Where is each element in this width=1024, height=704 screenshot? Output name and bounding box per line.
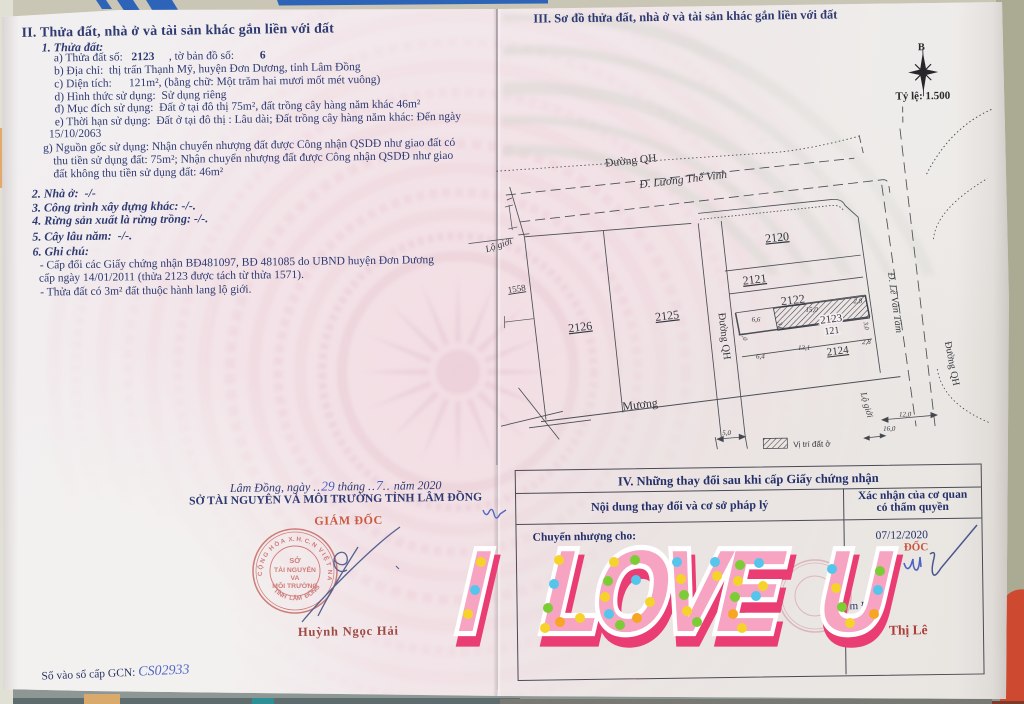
svg-text:13,1: 13,1: [798, 344, 810, 352]
svg-text:Đ. Lê Văn Tám: Đ. Lê Văn Tám: [885, 271, 904, 334]
svg-text:6,6: 6,6: [752, 316, 761, 324]
svg-text:5,0: 5,0: [722, 429, 731, 437]
svg-text:6,4: 6,4: [756, 352, 765, 360]
svg-text:16,0: 16,0: [883, 425, 896, 433]
svg-text:2,8: 2,8: [862, 338, 871, 346]
svg-text:121: 121: [824, 325, 840, 338]
svg-text:Lộ giới: Lộ giới: [858, 390, 875, 419]
svg-text:2122: 2122: [780, 291, 805, 308]
svg-text:2120: 2120: [764, 229, 789, 245]
svg-text:LOVE: LOVE: [539, 527, 789, 656]
svg-text:Vị trí đất ở: Vị trí đất ở: [793, 440, 831, 450]
svg-text:2124: 2124: [826, 344, 850, 359]
svg-text:3,0: 3,0: [861, 320, 870, 331]
svg-text:1558: 1558: [507, 282, 527, 295]
svg-text:Đường QH: Đường QH: [942, 340, 961, 386]
svg-text:1,0: 1,0: [740, 332, 749, 342]
svg-text:Mương: Mương: [622, 395, 659, 413]
svg-text:Đường QH: Đường QH: [716, 312, 733, 361]
svg-text:2125: 2125: [654, 307, 679, 324]
svg-text:12,0: 12,0: [899, 410, 912, 418]
svg-text:2123: 2123: [820, 312, 844, 327]
svg-text:15,0: 15,0: [805, 306, 818, 314]
svg-text:2,8: 2,8: [853, 297, 862, 305]
svg-text:2121: 2121: [742, 271, 767, 288]
svg-text:B: B: [918, 42, 925, 53]
svg-text:Đường QH: Đường QH: [605, 153, 658, 170]
svg-text:2126: 2126: [567, 318, 592, 335]
svg-text:Đ. Lương Thế Vinh: Đ. Lương Thế Vinh: [638, 168, 728, 192]
